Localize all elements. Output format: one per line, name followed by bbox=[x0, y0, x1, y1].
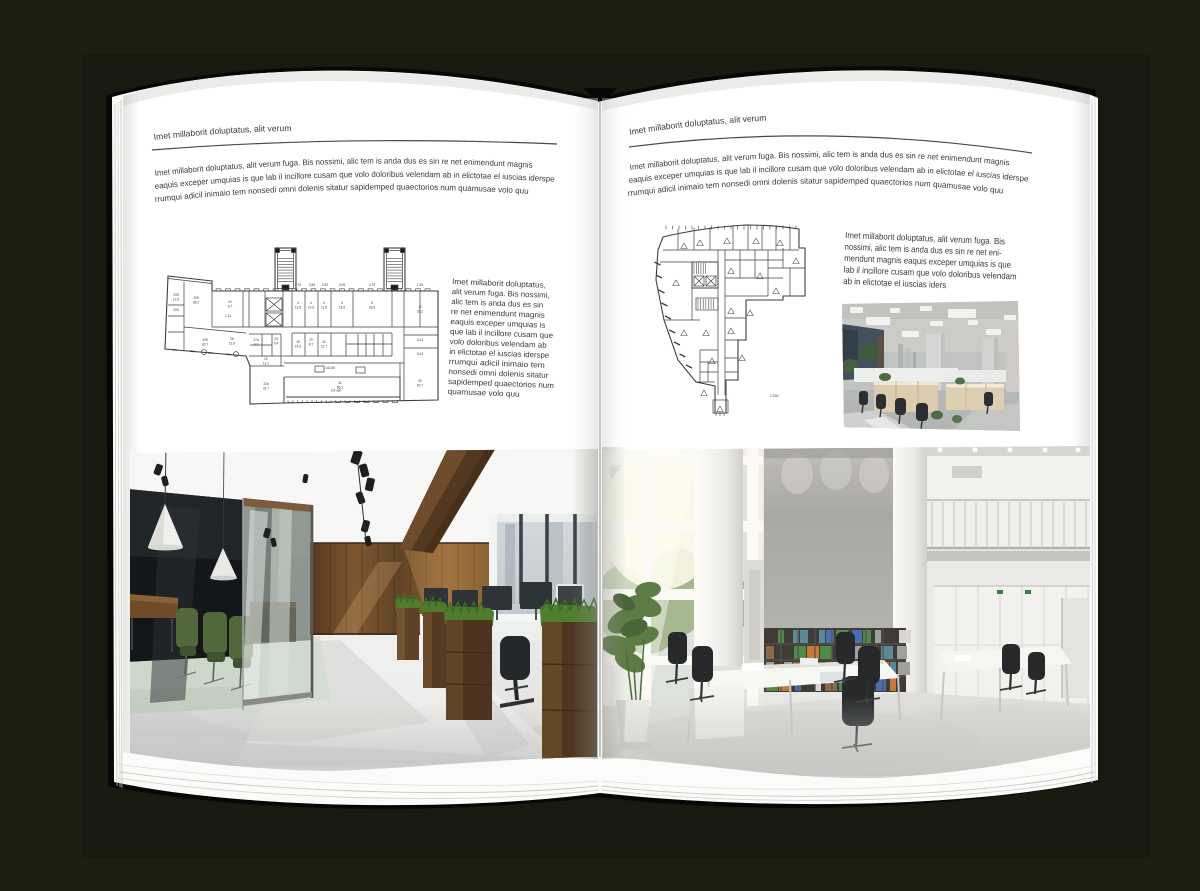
svg-text:12.6: 12.6 bbox=[229, 342, 235, 346]
svg-text:5: 5 bbox=[323, 301, 325, 305]
svg-text:11.7: 11.7 bbox=[321, 345, 327, 349]
svg-text:8.7: 8.7 bbox=[309, 343, 314, 347]
svg-text:1.11: 1.11 bbox=[225, 314, 231, 318]
svg-text:8: 8 bbox=[371, 301, 373, 305]
svg-text:11.8: 11.8 bbox=[321, 306, 327, 310]
svg-text:22: 22 bbox=[264, 357, 268, 361]
svg-text:6: 6 bbox=[341, 301, 343, 305]
svg-text:2.75: 2.75 bbox=[295, 283, 301, 287]
svg-text:30: 30 bbox=[418, 379, 422, 383]
svg-text:208: 208 bbox=[202, 338, 208, 342]
svg-text:31.7: 31.7 bbox=[263, 387, 269, 391]
svg-text:18.5: 18.5 bbox=[339, 306, 345, 310]
svg-text:28: 28 bbox=[296, 340, 300, 344]
svg-text:13.8: 13.8 bbox=[295, 306, 301, 310]
svg-text:32: 32 bbox=[322, 340, 326, 344]
svg-text:28.6: 28.6 bbox=[369, 306, 375, 310]
svg-text:5.14: 5.14 bbox=[417, 338, 423, 342]
svg-text:9.4: 9.4 bbox=[274, 342, 279, 346]
svg-text:2-й зал: 2-й зал bbox=[331, 389, 342, 393]
svg-text:31: 31 bbox=[338, 381, 342, 385]
svg-text:1:200: 1:200 bbox=[770, 394, 779, 398]
svg-text:22b: 22b bbox=[263, 382, 269, 386]
svg-text:26: 26 bbox=[230, 337, 234, 341]
svg-text:29: 29 bbox=[309, 338, 313, 342]
svg-text:3.09: 3.09 bbox=[339, 283, 345, 287]
svg-text:17: 17 bbox=[418, 305, 422, 309]
svg-text:27a: 27a bbox=[253, 338, 259, 342]
svg-text:24: 24 bbox=[274, 337, 278, 341]
svg-text:38.2: 38.2 bbox=[193, 301, 199, 305]
svg-text:20: 20 bbox=[228, 300, 232, 304]
svg-text:42.7: 42.7 bbox=[202, 343, 208, 347]
svg-text:14.5: 14.5 bbox=[295, 345, 301, 349]
svg-text:30.7: 30.7 bbox=[417, 384, 423, 388]
svg-text:205: 205 bbox=[173, 308, 179, 312]
svg-text:12.6: 12.6 bbox=[173, 298, 179, 302]
svg-text:32.2: 32.2 bbox=[417, 310, 423, 314]
svg-text:2.85: 2.85 bbox=[309, 283, 315, 287]
svg-text:209: 209 bbox=[193, 296, 199, 300]
svg-text:4.3: 4.3 bbox=[254, 343, 259, 347]
svg-text:3: 3 bbox=[297, 301, 299, 305]
svg-text:10.6: 10.6 bbox=[308, 306, 314, 310]
svg-text:1.45: 1.45 bbox=[417, 283, 423, 287]
svg-text:142.85: 142.85 bbox=[325, 366, 335, 370]
svg-text:5.43: 5.43 bbox=[417, 352, 423, 356]
svg-text:12.1: 12.1 bbox=[263, 362, 269, 366]
svg-text:208: 208 bbox=[173, 293, 179, 297]
svg-text:9.7: 9.7 bbox=[228, 305, 233, 309]
svg-text:3.79: 3.79 bbox=[369, 283, 375, 287]
svg-text:4: 4 bbox=[310, 301, 312, 305]
svg-text:2.92: 2.92 bbox=[322, 283, 328, 287]
